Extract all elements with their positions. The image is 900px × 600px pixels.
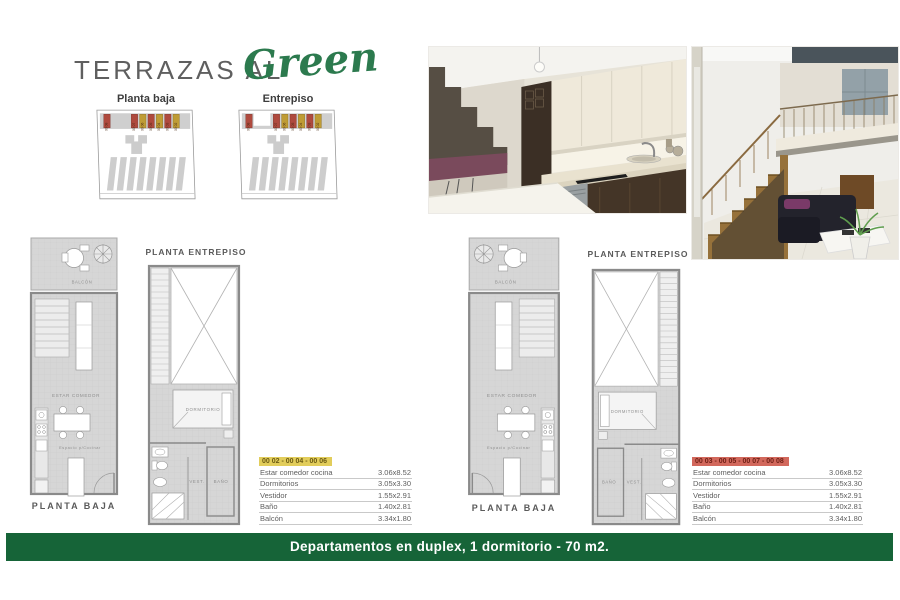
- row-value: 3.06x8.52: [378, 468, 411, 478]
- unit-cell-label: 00 06: [283, 122, 287, 131]
- row-value: 3.05x3.30: [829, 479, 862, 489]
- spec-table-yellow: 00 02 - 00 04 - 00 06 Estar comedor coci…: [259, 456, 412, 525]
- footer-banner: Departamentos en duplex, 1 dormitorio - …: [6, 533, 893, 561]
- unit-cell-label: 00 03: [166, 122, 170, 131]
- planta-entrepiso-caption: PLANTA ENTREPISO: [144, 247, 248, 257]
- siteplan-baja-label: Planta baja: [92, 93, 200, 105]
- dormitorio-label: DORMITORIO: [186, 407, 220, 412]
- planta-baja-caption: PLANTA BAJA: [26, 501, 122, 511]
- vestidor-label: VEST.: [189, 479, 204, 484]
- spec-table-header: 00 03 - 00 05 - 00 07 - 00 08: [692, 457, 789, 467]
- dormitorio-label: DORMITORIO: [611, 409, 644, 414]
- spec-table-red: 00 03 - 00 05 - 00 07 - 00 08 Estar come…: [692, 456, 863, 525]
- unit-cell-label: 00 07: [274, 122, 278, 131]
- kitchen-photo: [428, 46, 687, 214]
- planta-entrepiso-caption: PLANTA ENTREPISO: [586, 249, 690, 259]
- row-label: Balcón: [693, 514, 716, 524]
- living-room-photo: [691, 46, 899, 260]
- siteplan-entrepiso-drawing: 00 08 00 07 00 06 00 05 00 04 00 03 00 0…: [234, 107, 342, 203]
- estar-comedor-label: ESTAR COMEDOR: [487, 393, 537, 398]
- vestidor-label: VEST.: [627, 480, 642, 485]
- row-value: 3.05x3.30: [378, 479, 411, 489]
- unit-cell-label: 00 06: [141, 122, 145, 131]
- table-row: Balcón3.34x1.80: [692, 513, 863, 525]
- unit-cell-label: 00 08: [105, 122, 109, 131]
- planta-baja-caption: PLANTA BAJA: [464, 503, 564, 513]
- siteplan-baja-drawing: 00 08 00 07 00 06 00 05 00 04 00 03 00 0…: [92, 107, 200, 203]
- bano-label: BAÑO: [602, 480, 616, 485]
- row-label: Vestidor: [260, 491, 287, 501]
- row-label: Estar comedor cocina: [693, 468, 766, 478]
- row-label: Vestidor: [693, 491, 720, 501]
- unit-cell-label: 00 03: [308, 122, 312, 131]
- spec-table-header: 00 02 - 00 04 - 00 06: [259, 457, 332, 467]
- balcon-label: BALCÓN: [72, 280, 93, 285]
- floorplan-left-entrepiso: DORMITORIO VEST. BAÑO: [144, 262, 244, 530]
- floorplan-left-baja: BALCÓN ESTAR COMEDOR Espacio p/Cocinar: [26, 236, 122, 498]
- unit-cell-label: 00 04: [157, 122, 161, 131]
- unit-cell-label: 00 07: [132, 122, 136, 131]
- row-label: Balcón: [260, 514, 283, 524]
- unit-cell-label: 00 08: [247, 122, 251, 131]
- row-label: Dormitorios: [260, 479, 298, 489]
- row-value: 3.06x8.52: [829, 468, 862, 478]
- row-value: 1.55x2.91: [829, 491, 862, 501]
- row-label: Baño: [693, 502, 711, 512]
- table-row: Vestidor1.55x2.91: [692, 490, 863, 502]
- table-row: Estar comedor cocina3.06x8.52: [259, 467, 412, 479]
- table-row: Dormitorios3.05x3.30: [259, 479, 412, 491]
- unit-cell-label: 00 02: [174, 122, 178, 131]
- table-row: Baño1.40x2.81: [259, 502, 412, 514]
- espacio-cocinar-label: Espacio p/Cocinar: [59, 445, 101, 450]
- row-label: Estar comedor cocina: [260, 468, 333, 478]
- unit-cell-label: 00 02: [316, 122, 320, 131]
- balcon-label: BALCÓN: [495, 280, 517, 285]
- siteplan-entrepiso-label: Entrepiso: [234, 93, 342, 105]
- table-row: Baño1.40x2.81: [692, 502, 863, 514]
- row-value: 1.55x2.91: [378, 491, 411, 501]
- espacio-cocinar-label: Espacio p/Cocinar: [487, 445, 531, 450]
- table-row: Dormitorios3.05x3.30: [692, 479, 863, 491]
- unit-cell-label: 00 05: [149, 122, 153, 131]
- unit-cell-label: 00 04: [299, 122, 303, 131]
- row-value: 1.40x2.81: [378, 502, 411, 512]
- table-row: Balcón3.34x1.80: [259, 513, 412, 525]
- unit-cell-label: 00 05: [291, 122, 295, 131]
- floorplan-right-baja: BALCÓN ESTAR COMEDOR Espacio p/Cocinar: [464, 236, 564, 498]
- estar-comedor-label: ESTAR COMEDOR: [52, 393, 100, 398]
- row-value: 3.34x1.80: [378, 514, 411, 524]
- row-label: Baño: [260, 502, 278, 512]
- table-row: Vestidor1.55x2.91: [259, 490, 412, 502]
- row-value: 1.40x2.81: [829, 502, 862, 512]
- table-row: Estar comedor cocina3.06x8.52: [692, 467, 863, 479]
- page-title-brand: Green: [242, 33, 380, 89]
- row-value: 3.34x1.80: [829, 514, 862, 524]
- row-label: Dormitorios: [693, 479, 731, 489]
- floorplan-right-entrepiso: DORMITORIO VEST. BAÑO: [588, 266, 684, 530]
- flyer-page: TERRAZAS AL Green Planta baja Entrepiso …: [0, 0, 900, 600]
- bano-label: BAÑO: [214, 479, 229, 484]
